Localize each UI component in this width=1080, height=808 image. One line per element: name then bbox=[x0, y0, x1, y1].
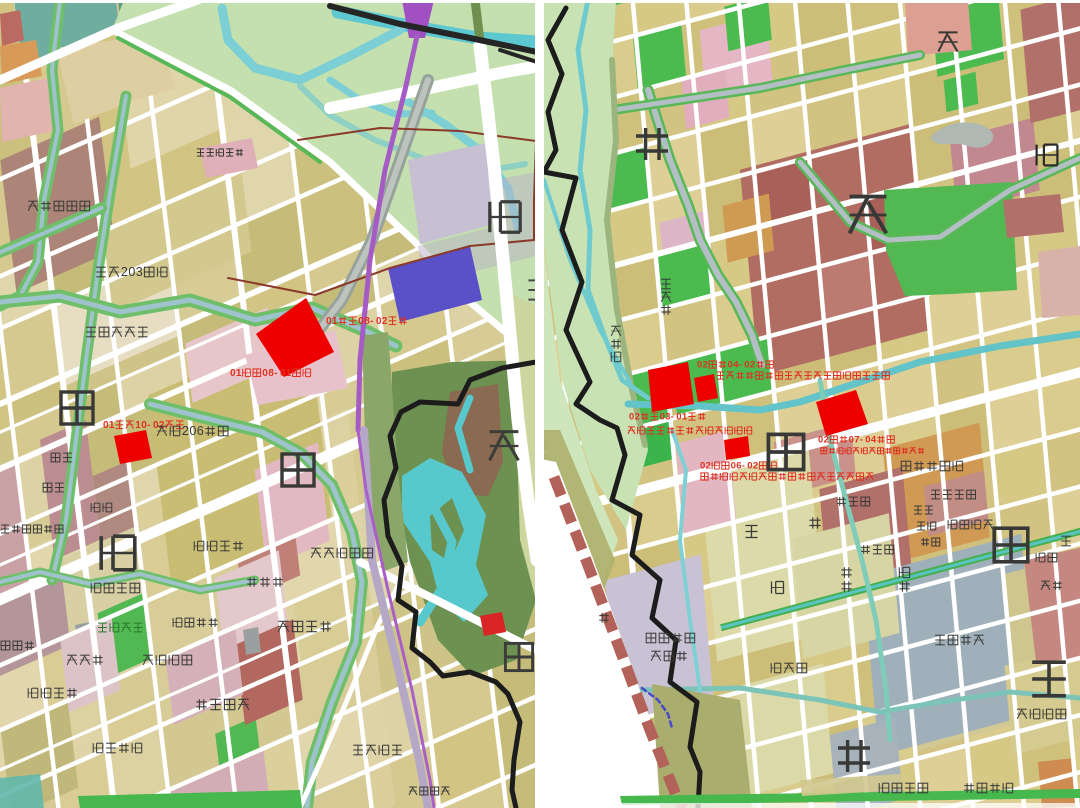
svg-text:0: 0 bbox=[747, 460, 752, 471]
svg-text:0: 0 bbox=[728, 359, 733, 370]
svg-text:1: 1 bbox=[332, 316, 338, 327]
svg-text:0: 0 bbox=[700, 460, 705, 471]
svg-text:1: 1 bbox=[109, 420, 115, 431]
svg-text:0: 0 bbox=[697, 359, 702, 370]
svg-text:0: 0 bbox=[849, 434, 854, 445]
svg-text:2: 2 bbox=[121, 265, 128, 279]
svg-text:7: 7 bbox=[854, 434, 859, 445]
svg-text:4: 4 bbox=[871, 434, 877, 445]
svg-text:2: 2 bbox=[753, 460, 758, 471]
svg-text:0: 0 bbox=[731, 460, 736, 471]
svg-text:1: 1 bbox=[236, 368, 242, 379]
svg-text:2: 2 bbox=[382, 316, 388, 327]
svg-text:2: 2 bbox=[159, 420, 165, 431]
svg-text:-: - bbox=[147, 420, 150, 431]
svg-text:3: 3 bbox=[665, 411, 670, 422]
svg-text:6: 6 bbox=[197, 424, 204, 438]
svg-text:0: 0 bbox=[676, 411, 681, 422]
svg-text:2: 2 bbox=[824, 434, 829, 445]
svg-text:1: 1 bbox=[682, 411, 688, 422]
svg-text:2: 2 bbox=[750, 359, 755, 370]
svg-text:0: 0 bbox=[128, 265, 135, 279]
svg-text:0: 0 bbox=[744, 359, 749, 370]
svg-text:0: 0 bbox=[818, 434, 823, 445]
svg-text:2: 2 bbox=[706, 460, 711, 471]
svg-text:-: - bbox=[739, 359, 742, 370]
svg-text:-: - bbox=[742, 460, 745, 471]
svg-text:6: 6 bbox=[736, 460, 741, 471]
svg-text:3: 3 bbox=[136, 265, 143, 279]
svg-text:0: 0 bbox=[629, 411, 634, 422]
svg-text:2: 2 bbox=[182, 424, 189, 438]
svg-text:-: - bbox=[274, 368, 277, 379]
svg-text:-: - bbox=[860, 434, 863, 445]
svg-text:0: 0 bbox=[660, 411, 665, 422]
svg-text:0: 0 bbox=[189, 424, 196, 438]
svg-text:-: - bbox=[671, 411, 674, 422]
svg-text:2: 2 bbox=[635, 411, 640, 422]
svg-text:1: 1 bbox=[286, 368, 292, 379]
svg-text:2: 2 bbox=[703, 359, 708, 370]
svg-text:0: 0 bbox=[865, 434, 870, 445]
svg-text:-: - bbox=[370, 316, 373, 327]
